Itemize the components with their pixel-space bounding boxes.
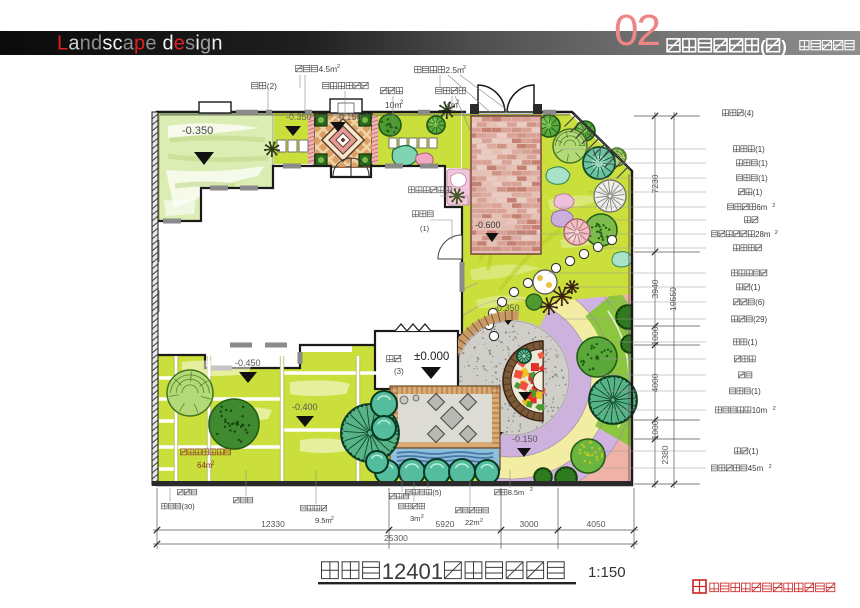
svg-text:(1): (1) bbox=[753, 188, 763, 197]
svg-text:(1): (1) bbox=[420, 224, 430, 233]
svg-text:2: 2 bbox=[337, 64, 340, 70]
svg-text:4050: 4050 bbox=[587, 519, 606, 529]
svg-text:2: 2 bbox=[421, 514, 424, 520]
svg-text:3000: 3000 bbox=[520, 519, 539, 529]
svg-text:02: 02 bbox=[614, 6, 659, 55]
svg-text:(2): (2) bbox=[267, 81, 277, 91]
svg-text:-0.350: -0.350 bbox=[182, 125, 213, 137]
svg-text:3m: 3m bbox=[410, 514, 420, 523]
svg-text:-0.400: -0.400 bbox=[292, 402, 318, 412]
svg-text:2: 2 bbox=[772, 203, 775, 209]
svg-text:(1): (1) bbox=[751, 387, 761, 396]
svg-text:Landscape design: Landscape design bbox=[57, 33, 223, 55]
svg-text:(30): (30) bbox=[182, 502, 195, 511]
svg-text:2: 2 bbox=[530, 487, 533, 493]
svg-text:(1): (1) bbox=[748, 338, 758, 347]
svg-text:(29): (29) bbox=[753, 315, 767, 324]
svg-text:19550: 19550 bbox=[668, 287, 678, 311]
svg-text:4.5m: 4.5m bbox=[319, 64, 338, 74]
svg-text:(6): (6) bbox=[755, 298, 765, 307]
svg-text:12330: 12330 bbox=[261, 519, 285, 529]
svg-text:3940: 3940 bbox=[650, 279, 660, 298]
svg-text:7230: 7230 bbox=[650, 174, 660, 193]
svg-text:25300: 25300 bbox=[384, 533, 408, 543]
svg-text:2: 2 bbox=[769, 464, 772, 470]
svg-text:2: 2 bbox=[773, 406, 776, 412]
svg-text:(4): (4) bbox=[744, 109, 754, 118]
svg-text:(3): (3) bbox=[394, 367, 404, 376]
svg-text:6m: 6m bbox=[756, 203, 767, 212]
svg-text:±0.000: ±0.000 bbox=[414, 350, 449, 363]
svg-text:-0.150: -0.150 bbox=[512, 434, 538, 444]
svg-text:(1): (1) bbox=[749, 447, 759, 456]
svg-text:1:150: 1:150 bbox=[588, 564, 626, 581]
svg-text:2: 2 bbox=[463, 65, 466, 71]
svg-text:8.5m: 8.5m bbox=[508, 488, 524, 497]
svg-text:-0.450: -0.450 bbox=[235, 358, 261, 368]
svg-text:9.5m: 9.5m bbox=[315, 516, 332, 525]
svg-text:10m: 10m bbox=[752, 406, 768, 415]
svg-text:28m: 28m bbox=[755, 230, 771, 239]
svg-text:45m: 45m bbox=[748, 464, 764, 473]
svg-text:(5): (5) bbox=[432, 488, 441, 497]
svg-text:(: ( bbox=[760, 37, 766, 56]
svg-text:12401: 12401 bbox=[382, 559, 443, 584]
svg-text:(1): (1) bbox=[758, 174, 768, 183]
svg-text:4000: 4000 bbox=[650, 373, 660, 392]
svg-text:5920: 5920 bbox=[436, 519, 455, 529]
svg-text:(1): (1) bbox=[758, 159, 768, 168]
svg-text:2: 2 bbox=[480, 518, 483, 524]
svg-text:1000: 1000 bbox=[650, 420, 660, 439]
svg-text:2: 2 bbox=[331, 516, 334, 522]
svg-text:1000: 1000 bbox=[650, 326, 660, 345]
svg-text:-0.600: -0.600 bbox=[475, 220, 501, 230]
svg-text:2.5m: 2.5m bbox=[445, 65, 464, 75]
svg-text:22m: 22m bbox=[465, 518, 480, 527]
svg-text:(1): (1) bbox=[751, 283, 761, 292]
svg-text:): ) bbox=[781, 37, 787, 56]
svg-text:2380: 2380 bbox=[660, 445, 670, 464]
svg-text:(1): (1) bbox=[755, 145, 765, 154]
svg-text:2: 2 bbox=[775, 230, 778, 236]
